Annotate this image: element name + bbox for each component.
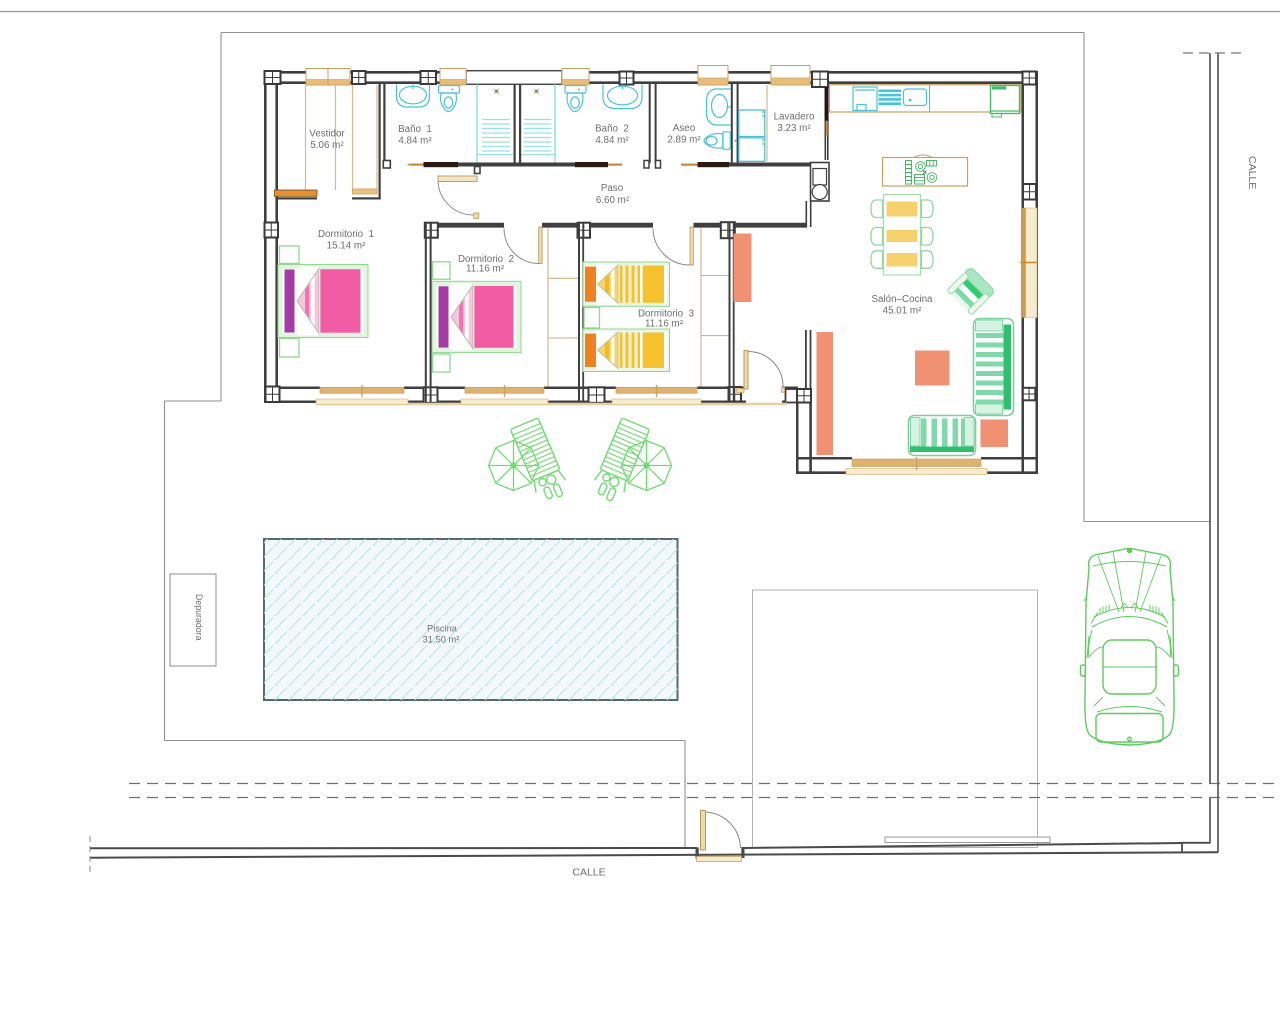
svg-text:Salón–Cocina: Salón–Cocina [871, 294, 933, 305]
svg-text:CALLE: CALLE [572, 867, 605, 879]
svg-text:2.89 m²: 2.89 m² [667, 135, 701, 146]
svg-text:CALLE: CALLE [1246, 156, 1258, 189]
svg-text:4.84 m²: 4.84 m² [595, 135, 629, 146]
svg-text:Baño 2: Baño 2 [595, 124, 629, 135]
svg-text:4.84 m²: 4.84 m² [398, 136, 432, 147]
svg-text:11.16 m²: 11.16 m² [466, 264, 505, 275]
svg-text:3.23 m²: 3.23 m² [777, 123, 811, 134]
svg-text:Piscina: Piscina [427, 624, 458, 634]
svg-text:5.06 m²: 5.06 m² [310, 140, 344, 151]
svg-text:45.01 m²: 45.01 m² [883, 306, 922, 317]
svg-text:Vestidor: Vestidor [309, 129, 345, 140]
svg-text:Dormitorio 1: Dormitorio 1 [318, 229, 374, 240]
svg-text:Aseo: Aseo [673, 123, 696, 134]
svg-text:Lavadero: Lavadero [774, 112, 815, 123]
svg-text:15.14 m²: 15.14 m² [327, 241, 366, 252]
svg-text:Paso: Paso [601, 183, 624, 194]
svg-text:6.60 m²: 6.60 m² [596, 195, 630, 206]
svg-text:Baño 1: Baño 1 [398, 124, 432, 135]
svg-text:Depuradora: Depuradora [194, 594, 204, 641]
svg-text:11.16 m²: 11.16 m² [645, 319, 684, 330]
svg-text:31.50 m²: 31.50 m² [423, 635, 460, 645]
